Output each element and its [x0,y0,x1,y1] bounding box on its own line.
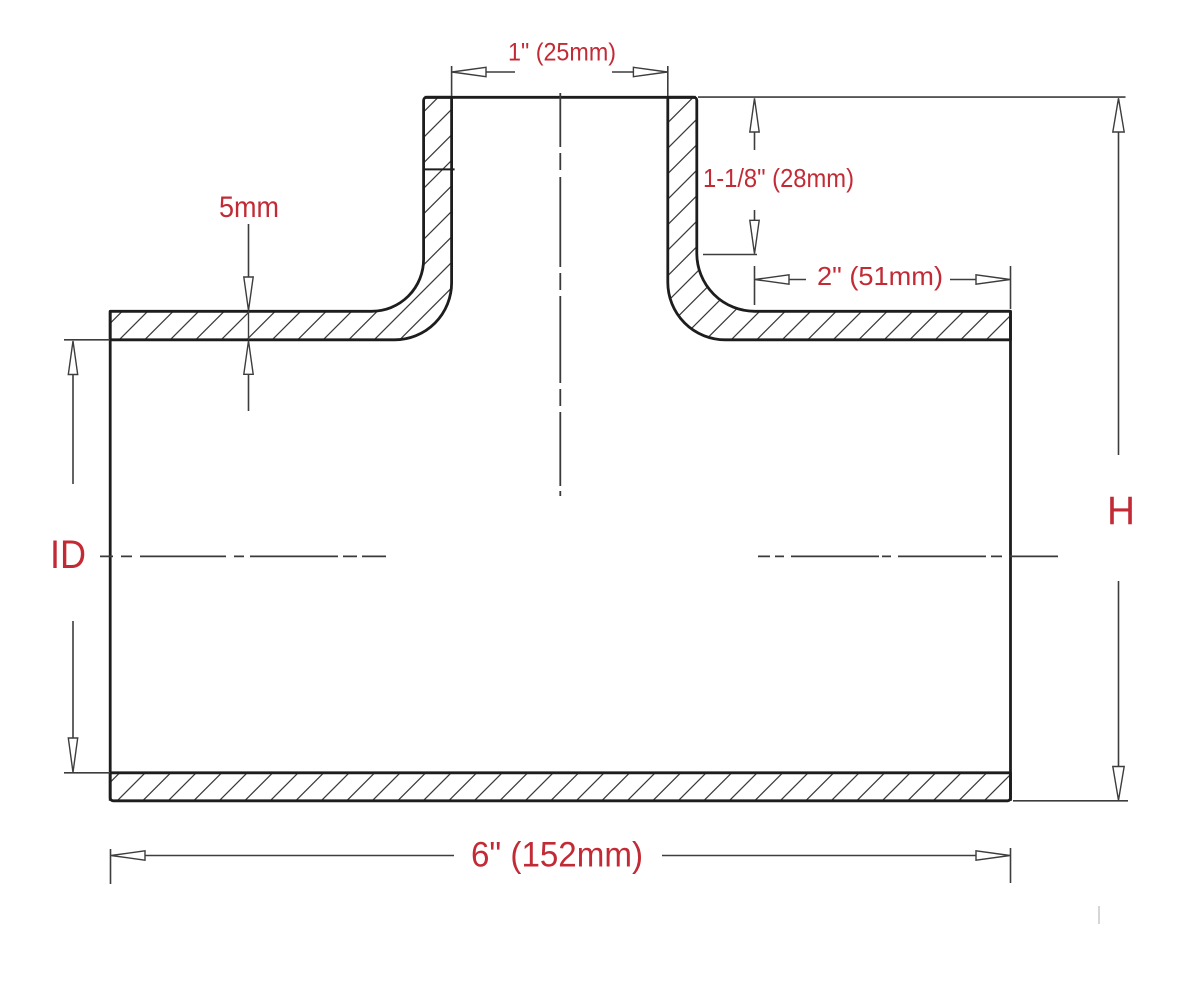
svg-text:2" (51mm): 2" (51mm) [817,261,943,291]
svg-text:1" (25mm): 1" (25mm) [508,39,616,67]
svg-text:H: H [1107,489,1135,533]
svg-text:6" (152mm): 6" (152mm) [471,836,643,875]
svg-text:1-1/8" (28mm): 1-1/8" (28mm) [703,163,854,193]
svg-text:5mm: 5mm [219,191,279,224]
svg-text:ID: ID [50,533,86,577]
